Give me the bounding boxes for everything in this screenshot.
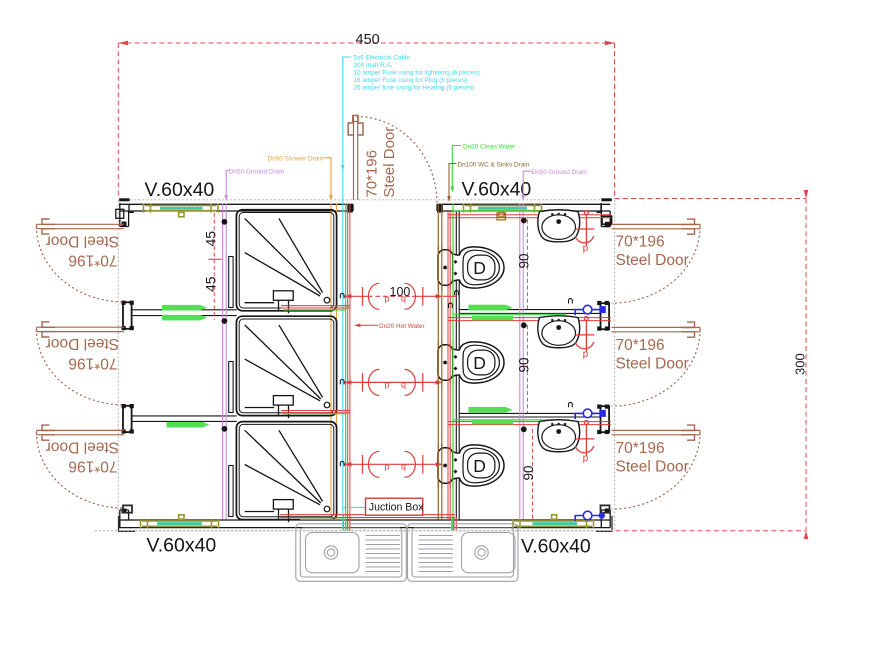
svg-text:d: d bbox=[384, 462, 389, 472]
svg-text:Dn50 Ground Drain: Dn50 Ground Drain bbox=[229, 168, 285, 175]
svg-text:D: D bbox=[473, 258, 486, 278]
svg-text:Dn100 WC & Sinks Drain: Dn100 WC & Sinks Drain bbox=[458, 161, 530, 168]
svg-text:d: d bbox=[384, 381, 389, 391]
svg-text:90: 90 bbox=[516, 253, 531, 268]
svg-text:Steel Door: Steel Door bbox=[616, 252, 689, 269]
svg-text:D: D bbox=[473, 456, 486, 476]
svg-text:70*196: 70*196 bbox=[616, 440, 665, 457]
svg-text:V.60x40: V.60x40 bbox=[521, 536, 591, 558]
svg-text:d: d bbox=[583, 349, 589, 360]
svg-text:10 amper Fuse using for lighti: 10 amper Fuse using for lightining (6 pi… bbox=[354, 70, 480, 77]
svg-text:Dn50 Shower Drain: Dn50 Shower Drain bbox=[268, 156, 324, 163]
svg-text:300 mah R.A.: 300 mah R.A. bbox=[354, 62, 393, 69]
svg-text:V.60x40: V.60x40 bbox=[147, 535, 217, 557]
svg-text:Steel Door: Steel Door bbox=[46, 232, 119, 249]
svg-text:70*196: 70*196 bbox=[364, 150, 381, 198]
svg-text:70*196: 70*196 bbox=[68, 458, 117, 475]
svg-text:45: 45 bbox=[202, 276, 218, 292]
svg-text:300: 300 bbox=[793, 353, 808, 375]
svg-text:D: D bbox=[473, 353, 486, 373]
svg-text:16 amper Fuse using for Plug (: 16 amper Fuse using for Plug (6 pieces) bbox=[354, 77, 468, 84]
svg-text:Steel Door: Steel Door bbox=[46, 335, 119, 352]
svg-text:70*196: 70*196 bbox=[616, 234, 665, 251]
svg-text:d: d bbox=[583, 243, 589, 254]
svg-text:90: 90 bbox=[521, 465, 536, 480]
svg-text:V.60x40: V.60x40 bbox=[145, 179, 215, 201]
svg-text:Steel Door: Steel Door bbox=[46, 438, 119, 455]
svg-text:70*196: 70*196 bbox=[616, 337, 665, 354]
svg-text:70*196: 70*196 bbox=[68, 252, 117, 269]
svg-text:Steel Door: Steel Door bbox=[616, 355, 689, 372]
svg-text:90: 90 bbox=[516, 357, 531, 372]
svg-text:d: d bbox=[583, 453, 589, 464]
svg-text:45: 45 bbox=[202, 231, 218, 247]
svg-text:V.60x40: V.60x40 bbox=[462, 179, 532, 201]
svg-text:450: 450 bbox=[356, 32, 380, 48]
svg-text:100: 100 bbox=[390, 285, 411, 299]
svg-text:Steel Door: Steel Door bbox=[616, 458, 689, 475]
svg-text:b: b bbox=[401, 381, 406, 391]
svg-text:Steel Door: Steel Door bbox=[381, 127, 398, 198]
svg-text:5x6 Electrical Cable: 5x6 Electrical Cable bbox=[354, 55, 411, 62]
svg-text:b: b bbox=[401, 462, 406, 472]
svg-text:Dn50 Ground Drain: Dn50 Ground Drain bbox=[532, 169, 588, 176]
svg-text:Juction Box: Juction Box bbox=[369, 501, 424, 513]
svg-text:70*196: 70*196 bbox=[68, 355, 117, 372]
svg-text:Dn20 Hot Water: Dn20 Hot Water bbox=[379, 323, 425, 330]
svg-text:25 amper fuse using for Heatin: 25 amper fuse using for Heating (6 piece… bbox=[354, 85, 475, 92]
svg-text:Dn20 Clean Water: Dn20 Clean Water bbox=[463, 143, 516, 150]
